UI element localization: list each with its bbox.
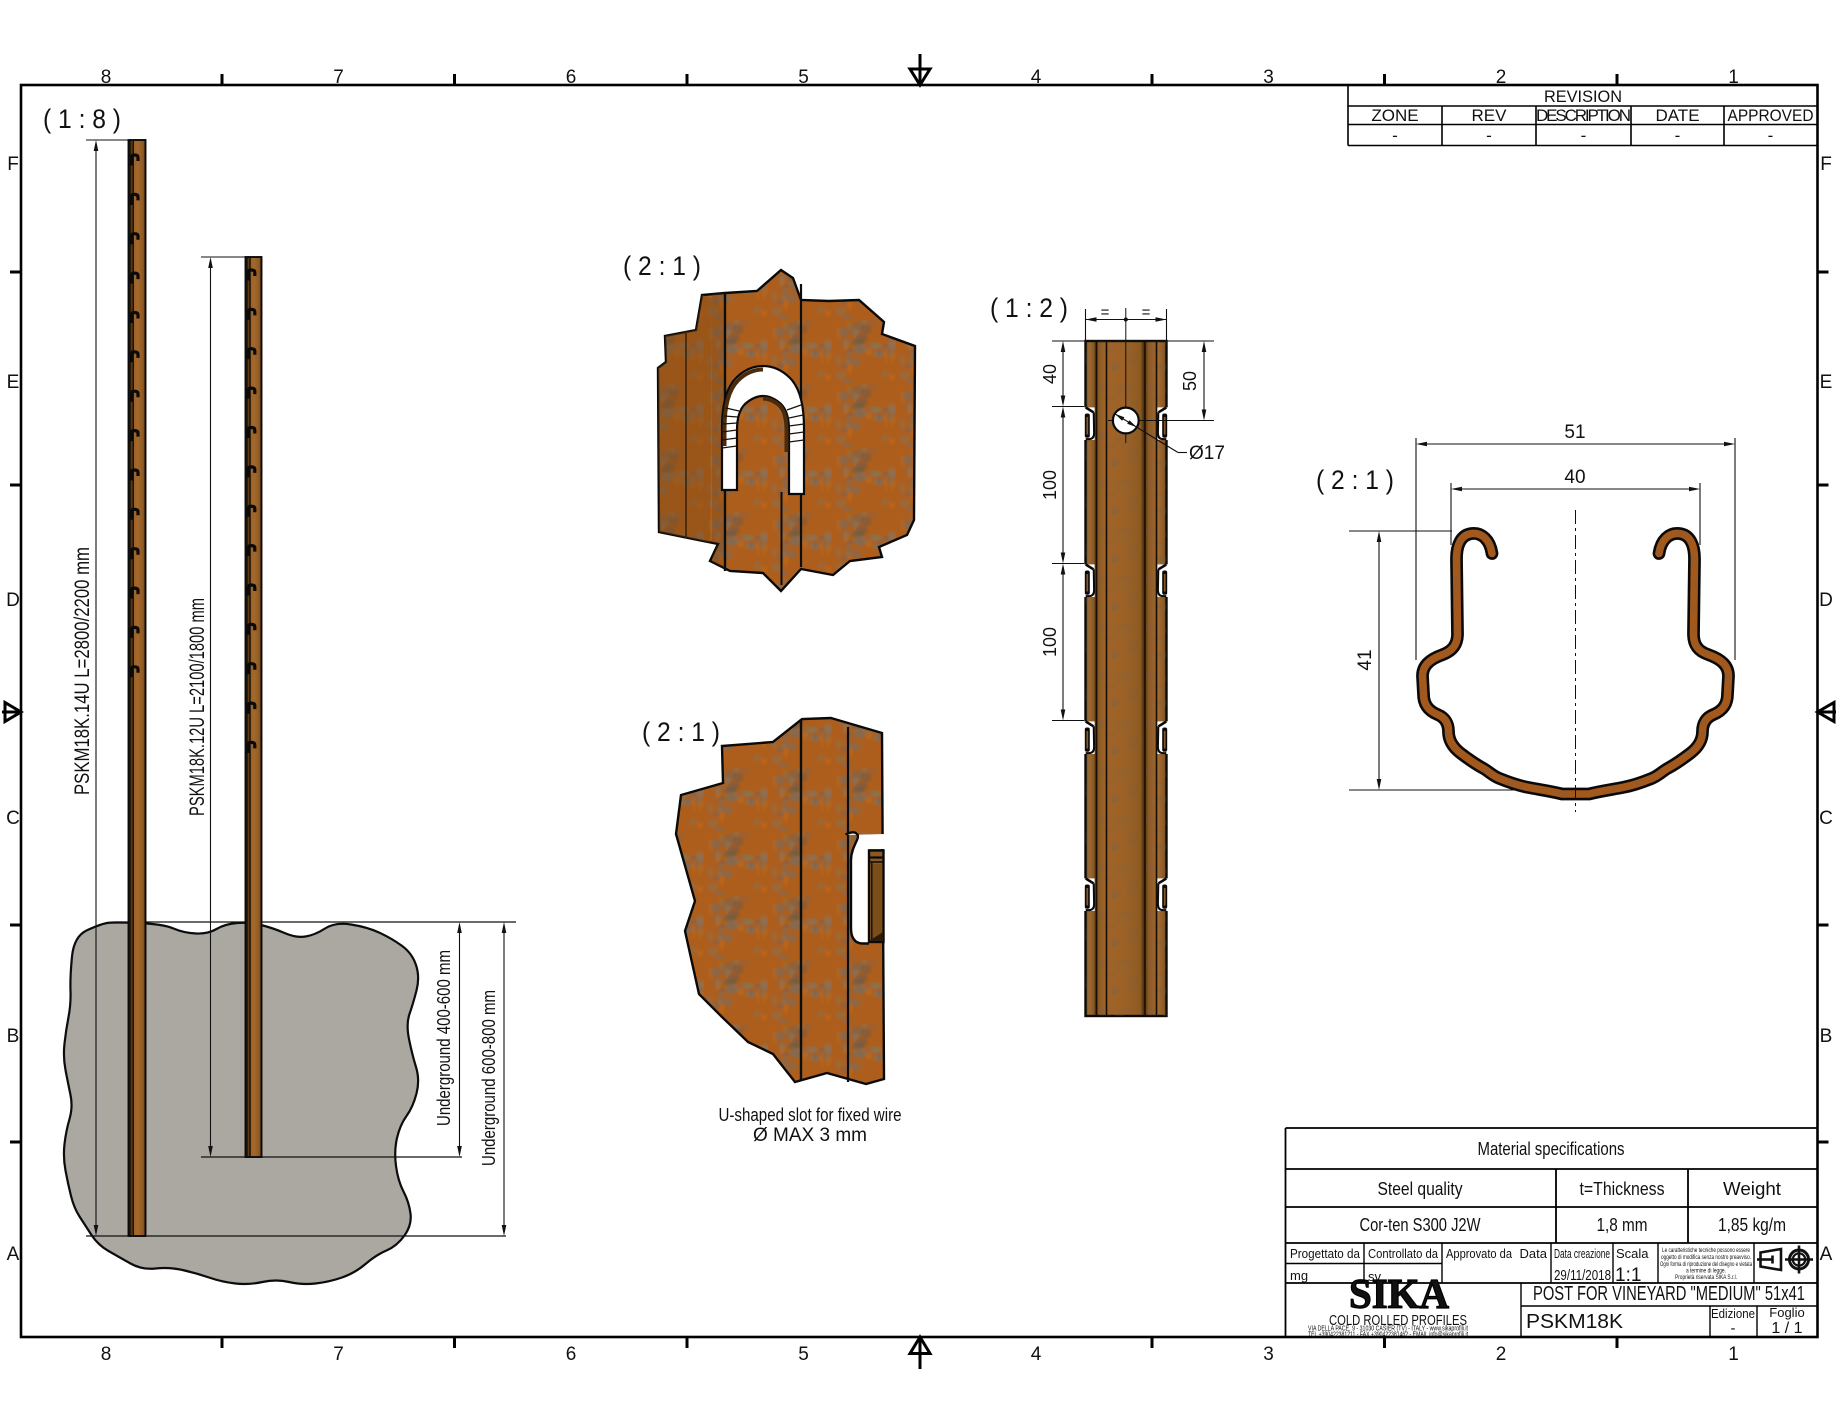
svg-text:C: C [1819,808,1833,829]
svg-text:mg: mg [1290,1268,1308,1283]
svg-text:Approvato da: Approvato da [1446,1246,1513,1261]
svg-text:F: F [1820,154,1832,175]
svg-text:4: 4 [1031,67,1042,88]
svg-text:PSKM18K: PSKM18K [1526,1311,1624,1333]
svg-text:Progettato da: Progettato da [1290,1246,1361,1261]
svg-text:t=Thickness: t=Thickness [1580,1179,1665,1199]
svg-text:2: 2 [1496,1344,1507,1365]
svg-text:A: A [1820,1244,1833,1265]
svg-text:=: = [1142,304,1151,321]
svg-text:REV: REV [1472,106,1508,125]
svg-text:4: 4 [1031,1344,1042,1365]
svg-text:DATE: DATE [1655,106,1699,125]
svg-text:7: 7 [333,1344,344,1365]
svg-text:( 2 : 1 ): ( 2 : 1 ) [642,717,720,747]
svg-text:29/11/2018: 29/11/2018 [1554,1268,1611,1284]
svg-text:Scala: Scala [1616,1246,1649,1261]
svg-text:5: 5 [798,67,809,88]
svg-text:100: 100 [1040,627,1060,657]
svg-text:E: E [1820,372,1833,393]
svg-text:D: D [1819,590,1833,611]
svg-text:-: - [1392,126,1398,145]
svg-text:B: B [1820,1026,1833,1047]
svg-text:Weight: Weight [1723,1179,1781,1199]
svg-text:oggetto di modifica senza nost: oggetto di modifica senza nostro preavvi… [1661,1255,1751,1261]
svg-text:Edizione: Edizione [1711,1306,1755,1321]
svg-text:-: - [1768,126,1774,145]
svg-text:2: 2 [1496,67,1507,88]
svg-text:( 1 : 8 ): ( 1 : 8 ) [43,104,121,134]
svg-text:1: 1 [1728,1344,1739,1365]
svg-text:ZONE: ZONE [1371,106,1418,125]
svg-text:( 2 : 1 ): ( 2 : 1 ) [623,251,701,281]
svg-text:8: 8 [101,67,112,88]
svg-text:Cor-ten S300 J2W: Cor-ten S300 J2W [1360,1215,1481,1235]
svg-text:U-shaped slot for fixed wire: U-shaped slot for fixed wire [719,1104,902,1125]
svg-text:Data creazione: Data creazione [1554,1246,1610,1261]
svg-text:REVISION: REVISION [1544,87,1622,106]
svg-text:TEL +390422381211 - FAX +39042: TEL +390422381211 - FAX +390422381462 - … [1308,1332,1468,1339]
svg-text:7: 7 [333,67,344,88]
svg-text:100: 100 [1040,470,1060,500]
svg-text:SIKA: SIKA [1349,1272,1450,1318]
svg-text:DESCRIPTION: DESCRIPTION [1536,106,1631,125]
svg-text:a termine di legge.: a termine di legge. [1686,1269,1726,1275]
svg-text:40: 40 [1040,364,1060,384]
svg-text:41: 41 [1355,649,1376,670]
svg-text:-: - [1731,1320,1736,1337]
svg-text:-: - [1675,126,1681,145]
svg-text:PSKM18K.12U L=2100/1800 mm: PSKM18K.12U L=2100/1800 mm [186,598,209,816]
svg-text:E: E [7,372,20,393]
svg-text:D: D [6,590,20,611]
svg-text:Underground 600-800 mm: Underground 600-800 mm [479,990,499,1166]
svg-text:F: F [7,154,19,175]
svg-text:40: 40 [1564,467,1585,488]
svg-text:Material specifications: Material specifications [1478,1139,1625,1159]
svg-text:Ø17: Ø17 [1189,443,1225,464]
svg-text:B: B [7,1026,20,1047]
svg-text:-: - [1486,126,1492,145]
svg-text:APPROVED: APPROVED [1728,106,1814,125]
svg-text:Underground 400-600 mm: Underground 400-600 mm [434,950,454,1126]
svg-text:Data: Data [1520,1246,1548,1261]
svg-text:POST FOR VINEYARD "MEDIUM" 51x: POST FOR VINEYARD "MEDIUM" 51x41 [1533,1283,1805,1305]
svg-text:1: 1 [1728,67,1739,88]
svg-text:C: C [6,808,20,829]
svg-text:Steel quality: Steel quality [1378,1179,1463,1199]
svg-text:3: 3 [1263,1344,1274,1365]
svg-text:6: 6 [566,67,577,88]
svg-text:Foglio: Foglio [1769,1305,1804,1320]
svg-text:1,85 kg/m: 1,85 kg/m [1718,1215,1786,1235]
svg-text:-: - [1581,126,1587,145]
svg-text:51: 51 [1564,422,1585,443]
svg-text:50: 50 [1180,371,1200,391]
svg-text:( 2 : 1 ): ( 2 : 1 ) [1316,465,1394,495]
svg-text:5: 5 [798,1344,809,1365]
svg-text:=: = [1101,304,1110,321]
svg-text:Ogni forma di riproduzione del: Ogni forma di riproduzione del disegno e… [1660,1262,1752,1268]
svg-text:A: A [7,1244,20,1265]
svg-text:3: 3 [1263,67,1274,88]
svg-text:Controllato da: Controllato da [1368,1246,1439,1261]
svg-text:Ø MAX 3 mm: Ø MAX 3 mm [753,1125,867,1146]
svg-text:Proprietà riservata SIKA S.r.l: Proprietà riservata SIKA S.r.l. [1675,1275,1737,1281]
svg-text:Le caratteristiche tecniche po: Le caratteristiche tecniche possono esse… [1662,1248,1751,1254]
svg-text:1 / 1: 1 / 1 [1771,1320,1802,1337]
svg-text:8: 8 [101,1344,112,1365]
svg-text:( 1 : 2 ): ( 1 : 2 ) [990,293,1068,323]
svg-text:PSKM18K.14U L=2800/2200 mm: PSKM18K.14U L=2800/2200 mm [71,547,94,795]
svg-text:1,8 mm: 1,8 mm [1597,1215,1648,1235]
svg-text:6: 6 [566,1344,577,1365]
